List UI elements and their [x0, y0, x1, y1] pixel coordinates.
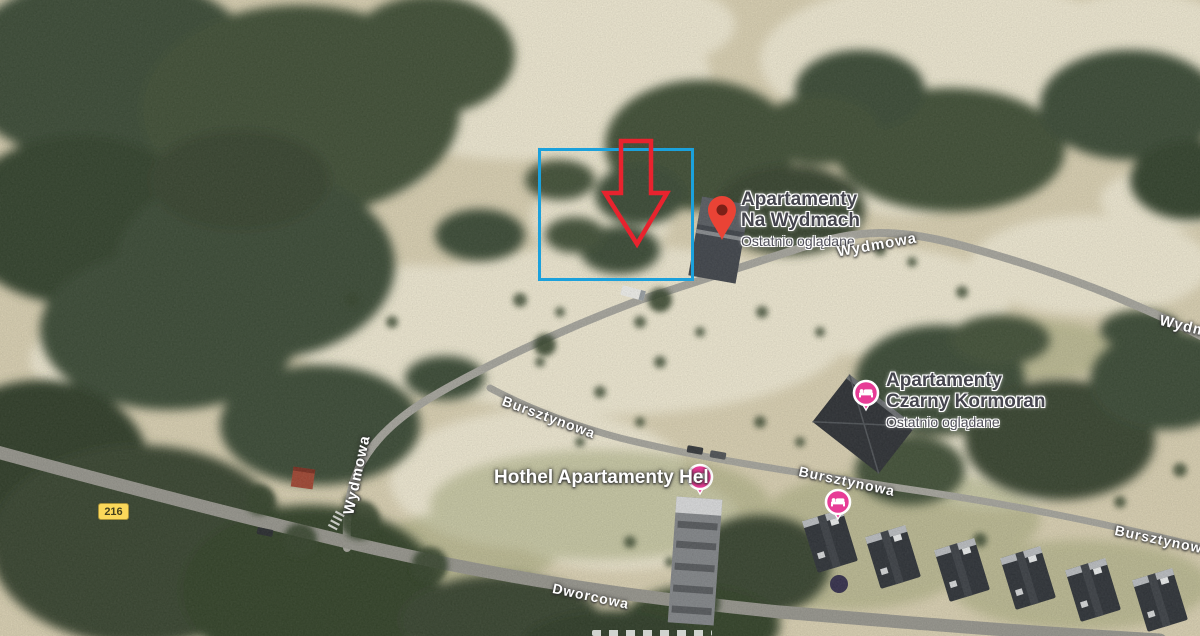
texture-light — [0, 0, 1200, 636]
red-map-pin[interactable] — [706, 195, 738, 241]
satellite-imagery — [0, 0, 1200, 636]
poi-label-hothel[interactable]: Hothel Apartamenty Hel — [494, 467, 709, 489]
poi-name-line1: Apartamenty — [886, 370, 1045, 391]
poi-label-czarny-kormoran[interactable]: Apartamenty Czarny Kormoran Ostatnio ogl… — [886, 370, 1045, 430]
red-arrow-annotation — [601, 137, 677, 253]
poi-status: Ostatnio oglądane — [886, 414, 1045, 430]
poi-name-line1: Apartamenty — [741, 189, 860, 210]
poi-label-na-wydmach[interactable]: Apartamenty Na Wydmach Ostatnio oglądane — [741, 189, 860, 249]
poi-name-line2: Czarny Kormoran — [886, 391, 1045, 412]
poi-name-line2: Na Wydmach — [741, 210, 860, 231]
satellite-map[interactable]: Apartamenty Na Wydmach Ostatnio oglądane… — [0, 0, 1200, 636]
route-badge-216: 216 — [98, 503, 129, 520]
lodging-marker-south[interactable] — [821, 485, 855, 529]
clipped-street-label — [592, 630, 712, 636]
lodging-marker-czarny-kormoran[interactable] — [849, 376, 883, 420]
